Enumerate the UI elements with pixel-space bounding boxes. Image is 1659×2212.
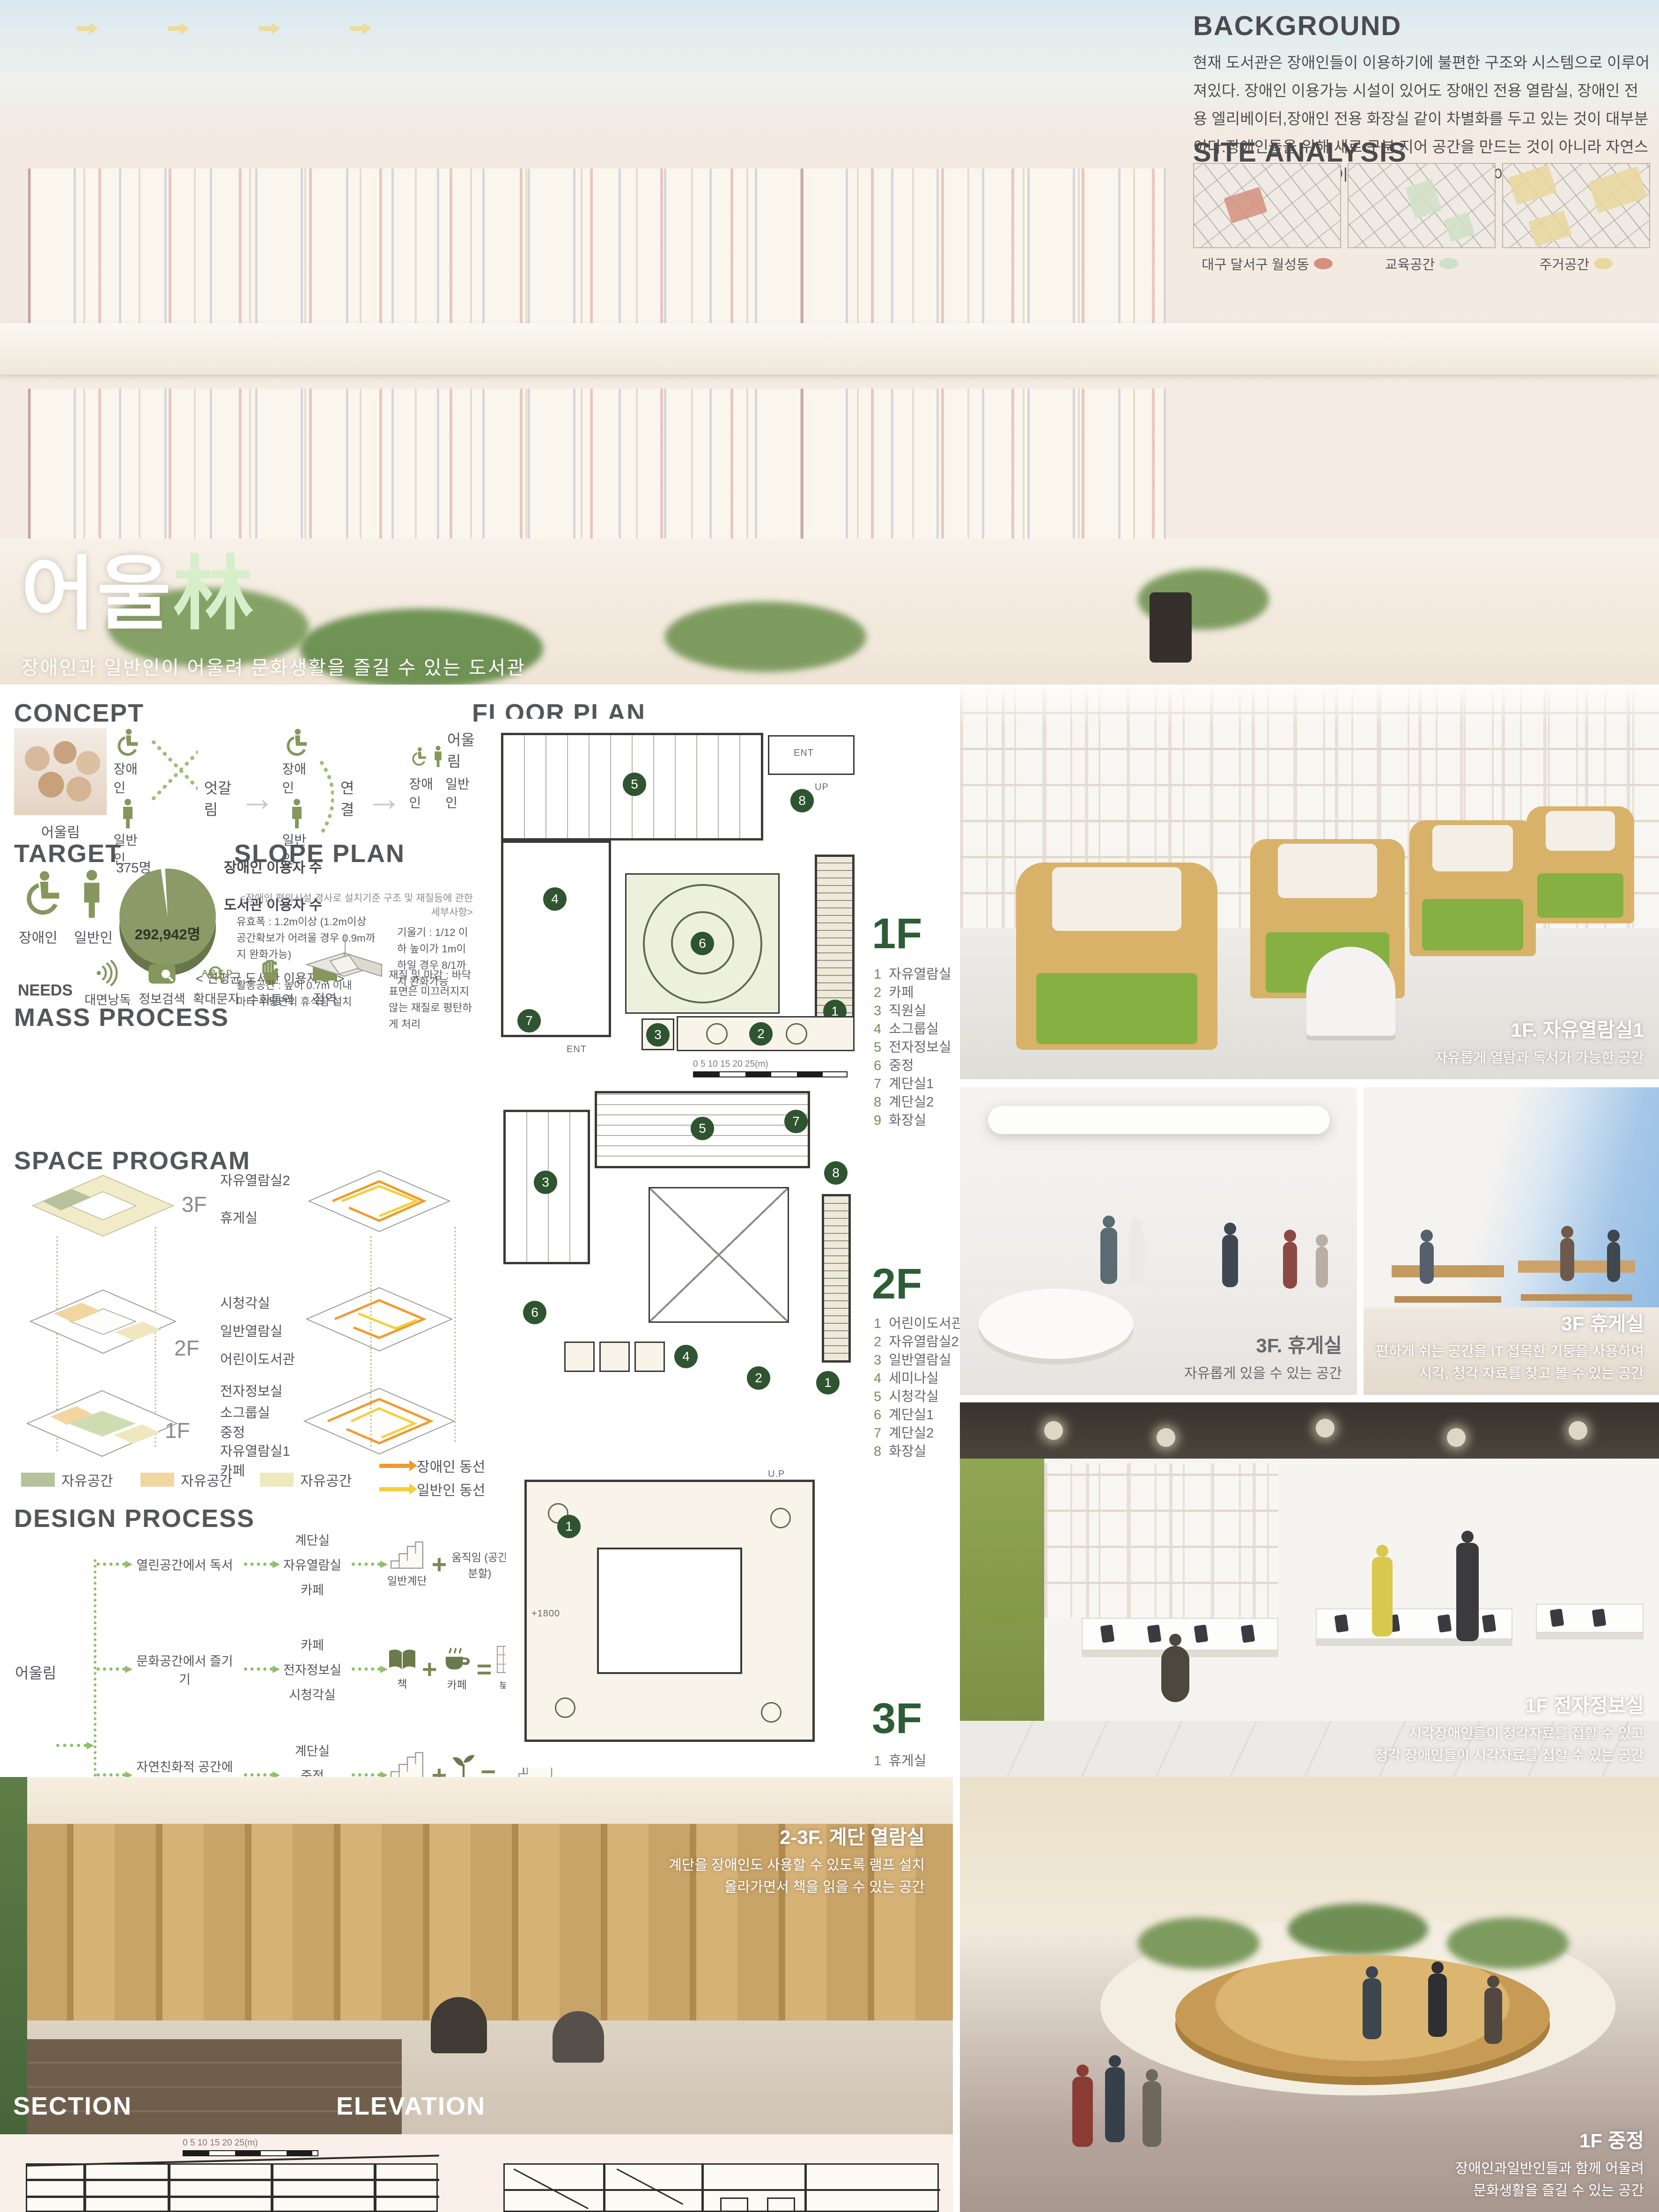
dotted-arrow-icon	[96, 1773, 125, 1777]
book-icon	[387, 1648, 417, 1672]
wheelchair-icon	[20, 869, 66, 918]
orange-arrow-icon	[379, 1464, 410, 1468]
legend-room: 중정	[889, 1058, 914, 1073]
plan-2f-label: 2F	[872, 1260, 922, 1309]
dotted-arrow-icon	[96, 1667, 125, 1671]
legend-room: 전자정보실	[889, 1040, 951, 1055]
person-figure	[1560, 1238, 1574, 1281]
spotlight	[1157, 1428, 1175, 1447]
site-map-location	[1193, 163, 1341, 248]
shrub	[1447, 1917, 1569, 1969]
ceiling	[960, 685, 1659, 727]
space-label: 중정	[220, 1422, 245, 1441]
cross-arrows-icon	[149, 728, 197, 817]
person-icon	[79, 869, 105, 918]
plan-2f-legend: 1어린이도서관 2자유열람실2 3일반열람실 4세미나실 5시청각실 6계단실1…	[874, 1315, 964, 1461]
need-item: 정보검색	[135, 960, 189, 1008]
photo-caption: 2-3F. 계단 열람실 계단을 장애인도 사용할 수 있도록 램프 설치 올라…	[669, 1821, 925, 1898]
magnified-text-icon	[201, 964, 232, 985]
space-item: 시청각실	[289, 1685, 335, 1703]
slope-note-finish: 재질 및 마감 : 바닥표면은 미끄러지지 않는 재질로 평탄하게 처리	[389, 967, 473, 1033]
stage3-label: 어울림	[447, 728, 475, 771]
legend-num: 6	[874, 1058, 881, 1073]
person-figure	[1372, 1557, 1393, 1637]
photo-stair-reading: 2-3F. 계단 열람실 계단을 장애인도 사용할 수 있도록 램프 설치 올라…	[0, 1777, 953, 2134]
room-number: 3	[534, 1171, 557, 1194]
yellow-arrow-icon	[379, 1487, 410, 1491]
photo-courtyard: 1F 중정 장애인과일반인들과 함께 어울려 문화생활을 즐길 수 있는 공간	[960, 1777, 1659, 2212]
legend-room: 세미나실	[889, 1371, 939, 1386]
iso-circ-3f	[304, 1168, 454, 1248]
legend-room: 어린이도서관	[889, 1316, 964, 1331]
design-root-label: 어울림	[15, 1661, 56, 1683]
mass-process-heading: MASS PROCESS	[14, 1003, 229, 1032]
caption-title: 1F 전자정보실	[1375, 1690, 1644, 1718]
caption-line: 자유롭게 열람과 독서가 가능한 공간	[1435, 1047, 1644, 1069]
equation-b-label: 카페	[447, 1676, 467, 1692]
legend-num: 1	[874, 1316, 881, 1331]
room-number: 2	[749, 1022, 773, 1046]
bookshelf-wall	[1044, 1463, 1278, 1618]
dotted-arrow-icon	[352, 1563, 381, 1566]
wheelchair-icon	[282, 728, 311, 757]
caption-title: 1F 중정	[1455, 2125, 1644, 2153]
legend-room: 계단실2	[889, 1426, 934, 1441]
plan-ring-hole	[597, 1548, 742, 1674]
bush	[665, 602, 866, 672]
legend-free-space-green: 자유공간	[21, 1469, 113, 1490]
room-number: 8	[824, 1161, 848, 1185]
room-number: 1	[816, 1371, 840, 1394]
space-label: 휴게실	[220, 1207, 258, 1227]
caption-line: 자유롭게 있을 수 있는 공간	[1184, 1363, 1342, 1385]
photographer-silhouette	[1150, 592, 1192, 663]
person-figure	[1222, 1235, 1238, 1287]
wheelchair-user	[553, 2011, 604, 2063]
person-figure	[1420, 1242, 1434, 1284]
legend-label: 자유공간	[300, 1469, 352, 1490]
voice-reading-icon	[95, 960, 121, 986]
yellow-arrow-icon	[168, 26, 182, 31]
wheelchair-icon	[113, 728, 142, 757]
room-number: 7	[784, 1110, 808, 1133]
space-item: 계단실	[295, 1530, 330, 1548]
caption-line: 장애인과일반인들과 함께 어울려	[1455, 2158, 1644, 2180]
legend-room: 직원실	[889, 1003, 926, 1018]
interior-upper	[960, 1777, 1659, 1932]
photo-caption: 3F 휴게실 편하게 쉬는 공간을 IT 접목한 기둥을 사용하여 시각, 청각…	[1376, 1308, 1644, 1385]
legend-room: 화장실	[889, 1444, 926, 1459]
concept-photo: 어울림	[14, 728, 107, 841]
space-label: 일반열람실	[220, 1320, 282, 1340]
ceiling-light	[988, 1106, 1330, 1134]
floor-tag-2f: 2F	[174, 1335, 199, 1361]
poster-title-korean: 어울	[21, 549, 173, 639]
space-item: 카페	[301, 1580, 324, 1598]
person-figure	[1456, 1543, 1479, 1641]
reading-pod	[1526, 806, 1634, 923]
pie-chart: 292,942명	[119, 869, 216, 965]
legend-free-space-orange: 자유공간	[140, 1469, 232, 1490]
site-map-caption: 대구 달서구 월성동	[1193, 254, 1341, 273]
green-wall	[960, 1459, 1044, 1721]
section-heading: SECTION	[13, 2092, 132, 2121]
photo-digital-room: 1F 전자정보실 시각장애인들이 청각자료를 접할 수 있고 청각 장애인들이 …	[960, 1402, 1659, 1777]
photo-caption: 1F 전자정보실 시각장애인들이 청각자료를 접할 수 있고 청각 장애인들이 …	[1375, 1690, 1644, 1767]
iso-2f	[26, 1288, 180, 1367]
target-icon-label: 일반인	[74, 926, 113, 947]
person-figure	[1105, 2067, 1125, 2142]
plan-seminar	[564, 1342, 595, 1372]
stage1-label: 엇갈림	[204, 776, 233, 819]
room-number: 5	[691, 1117, 714, 1140]
caption-line: 편하게 쉬는 공간을 IT 접목한 기둥을 사용하여	[1376, 1341, 1644, 1363]
legend-label: 자유공간	[181, 1469, 232, 1490]
stairs-icon	[390, 1541, 424, 1569]
legend-num: 8	[874, 1444, 881, 1459]
space-label: 시청각실	[220, 1292, 270, 1312]
caption-title: 3F 휴게실	[1376, 1308, 1644, 1336]
background-heading: BACKGROUND	[1193, 10, 1401, 42]
person-figure	[1484, 1988, 1502, 2044]
label-disabled: 장애인	[282, 759, 311, 796]
scale-ticks: 0 5 10 15 20 25(m)	[183, 2138, 258, 2148]
concept-stage3: 어울림 장애인 일반인	[409, 728, 475, 811]
reading-pod	[1409, 820, 1536, 956]
target-heading: TARGET	[14, 839, 122, 868]
section-scale-bar: 0 5 10 15 20 25(m)	[183, 2138, 318, 2156]
shrub	[1288, 1903, 1428, 1955]
legend-label: 장애인 동선	[417, 1455, 485, 1476]
label-disabled: 장애인	[113, 759, 142, 796]
space-item: 전자정보실	[283, 1660, 341, 1678]
dotted-arrow-icon	[244, 1563, 273, 1566]
stairs-icon	[390, 1752, 424, 1780]
space-item: 계단실	[295, 1741, 330, 1759]
yellow-arrow-icon	[77, 26, 90, 31]
space-label: 자유열람실2	[220, 1170, 290, 1189]
seated-figure	[1161, 1646, 1189, 1702]
display-table	[1536, 1604, 1644, 1633]
person-figure	[1283, 1242, 1297, 1289]
map-label: 주거공간	[1540, 254, 1590, 273]
bookshelf-band-upper	[28, 169, 1166, 323]
bookshelf-band-lower	[28, 389, 1166, 538]
person-figure	[1428, 1974, 1447, 2037]
dotted-arrow-icon	[96, 1563, 125, 1566]
dotted-arrow-icon	[244, 1773, 273, 1777]
plan-1f-legend: 1자유열람실 2카페 3직원실 4소그룹실 5전자정보실 6중정 7계단실1 8…	[874, 966, 951, 1130]
scale-ticks: 0 5 10 15 20 25(m)	[693, 1059, 768, 1069]
caption-title: 1F. 자유열람실1	[1435, 1014, 1644, 1043]
entrance-label: ENT	[567, 1044, 587, 1055]
legend-label: 자유공간	[61, 1469, 113, 1490]
caption-line: 시각, 청각 자료를 찾고 볼 수 있는 공간	[1376, 1363, 1644, 1385]
legend-room: 계단실1	[889, 1077, 934, 1091]
site-map-residential	[1502, 163, 1650, 248]
equals-icon: =	[477, 1656, 492, 1682]
caption-line: 계단을 장애인도 사용할 수 있도록 램프 설치	[669, 1855, 925, 1877]
plan-1f-label: 1F	[872, 909, 922, 959]
legend-label: 일반인 동선	[417, 1479, 485, 1499]
plant-icon	[451, 1753, 476, 1778]
space-list: 계단실 자유열람실 카페	[280, 1530, 345, 1598]
legend-dot-yellow	[1594, 258, 1613, 269]
person-figure	[1363, 1978, 1381, 2039]
label-disabled: 장애인	[409, 774, 439, 811]
wheelchair-icon	[409, 742, 429, 771]
room-number: 6	[691, 932, 714, 955]
floor-tag-1f: 1F	[165, 1418, 190, 1443]
plan-scale-bar: 0 5 10 15 20 25(m)	[693, 1059, 848, 1077]
display-table	[1082, 1618, 1278, 1651]
caption-title: 3F. 휴게실	[1184, 1330, 1342, 1358]
map-label: 교육공간	[1385, 254, 1435, 273]
legend-num: 9	[874, 1113, 881, 1128]
legend-num: 7	[874, 1077, 881, 1091]
root-arrow	[56, 1744, 87, 1747]
legend-room: 자유열람실	[889, 967, 951, 982]
legend-room: 휴게실	[889, 1754, 926, 1769]
photo-lounge-a: 3F. 휴게실 자유롭게 있을 수 있는 공간	[960, 1087, 1357, 1395]
legend-num: 1	[874, 1754, 881, 1769]
legend-num: 6	[874, 1408, 881, 1423]
dotted-arrow-icon	[352, 1773, 381, 1777]
display-table	[1316, 1608, 1512, 1639]
dark-ceiling	[960, 1402, 1659, 1459]
room-number: 4	[674, 1345, 698, 1368]
legend-room: 카페	[889, 985, 914, 1000]
elevation-drawing	[503, 2163, 939, 2212]
legend-num: 3	[874, 1353, 881, 1368]
dotted-arrow-icon	[352, 1667, 381, 1671]
person-figure	[1072, 2077, 1093, 2147]
photo-caption: 1F. 자유열람실1 자유롭게 열람과 독서가 가능한 공간	[1435, 1014, 1644, 1069]
photo-caption: 1F 중정 장애인과일반인들과 함께 어울려 문화생활을 즐길 수 있는 공간	[1455, 2125, 1644, 2202]
space-item: 자유열람실	[283, 1555, 341, 1573]
legend-num: 7	[874, 1426, 881, 1441]
legend-room: 소그룹실	[889, 1022, 939, 1037]
design-row-2: 문화공간에서 즐기기 카페 전자정보실 시청각실 책 + 카페 = 북카페	[96, 1635, 531, 1703]
room-number: 7	[517, 1009, 541, 1032]
activity-label: 열린공간에서 독서	[132, 1555, 237, 1573]
plan-void	[649, 1187, 789, 1323]
legend-num: 4	[874, 1371, 881, 1386]
need-item: 확대문자	[189, 960, 243, 1008]
map-label: 대구 달서구 월성동	[1202, 254, 1309, 273]
legend-circulation-general: 일반인 동선	[379, 1479, 485, 1499]
legend-room: 자유열람실2	[889, 1335, 959, 1349]
legend-free-space-yellow: 자유공간	[260, 1469, 352, 1490]
group-photo	[14, 728, 107, 815]
person-icon	[120, 798, 136, 828]
poster: 어울林 장애인과 일반인이 어울려 문화생활을 즐길 수 있는 도서관 BACK…	[0, 0, 1659, 2212]
poster-title-hanja: 林	[173, 549, 255, 639]
slope-note-activity: 활동공간 : 높이 0.7m 이내마다 수평면의 휴식참 설치	[236, 978, 354, 1010]
legend-num: 8	[874, 1095, 881, 1110]
space-label: 전자정보실	[220, 1380, 282, 1400]
title-block: 어울林 장애인과 일반인이 어울려 문화생활을 즐길 수 있는 도서관	[21, 528, 526, 680]
spotlight	[1316, 1419, 1335, 1438]
space-label: 어린이도서관	[220, 1349, 295, 1368]
caption-line: 문화생활을 즐길 수 있는 공간	[1455, 2180, 1644, 2202]
plan-1f: 5 ENT UP 8 4 6 1 3 2 7 ENT	[487, 719, 859, 1054]
wheelchair-user	[431, 1997, 487, 2053]
person-figure	[1607, 1242, 1620, 1282]
arrow-right-icon: →	[366, 780, 403, 816]
section-drawing	[26, 2163, 438, 2212]
swatch-orange	[140, 1473, 174, 1487]
plan-seminar	[599, 1342, 630, 1372]
space-item: 카페	[301, 1635, 324, 1653]
level-label: +1800	[531, 1608, 560, 1619]
poster-subtitle: 장애인과 일반인이 어울려 문화생활을 즐길 수 있는 도서관	[21, 652, 526, 680]
round-pod	[979, 1289, 1133, 1359]
plan-seminar	[634, 1342, 665, 1372]
spotlight	[1044, 1421, 1063, 1440]
mezzanine-floor	[0, 323, 1659, 375]
room-number: 5	[623, 773, 646, 796]
equation-b-label: 움직임 (공간 분할)	[451, 1548, 508, 1580]
arrow-right-icon: →	[239, 780, 276, 816]
up-label: U.P	[768, 1469, 785, 1480]
activity-label: 문화공간에서 즐기기	[132, 1651, 237, 1688]
need-item: 대면낭독	[81, 960, 135, 1008]
green-plant-wall	[0, 1777, 27, 2134]
plan-3f-legend: 1휴게실	[874, 1752, 926, 1770]
person-figure	[1100, 1228, 1117, 1284]
concept-heading: CONCEPT	[14, 699, 144, 728]
legend-num: 3	[874, 1003, 881, 1018]
person-figure	[1143, 2081, 1161, 2147]
yellow-arrow-icon	[259, 26, 273, 31]
room-number: 6	[523, 1301, 546, 1324]
site-map-caption: 교육공간	[1348, 254, 1496, 273]
search-tablet-icon	[147, 963, 177, 985]
iso-3f	[28, 1173, 178, 1253]
legend-room: 일반열람실	[889, 1353, 951, 1368]
concept-photo-caption: 어울림	[14, 821, 107, 841]
shrub	[1138, 1917, 1260, 1969]
legend-num: 2	[874, 1335, 881, 1349]
legend-room: 계단실1	[889, 1408, 934, 1423]
room-number: 4	[543, 887, 567, 911]
needs-label: NEEDS	[18, 981, 73, 1000]
label-general: 일반인	[445, 774, 475, 811]
spotlight	[1569, 1421, 1587, 1440]
room-number: 3	[646, 1023, 670, 1047]
up-label: UP	[815, 782, 829, 793]
plan-3f-label: 3F	[872, 1694, 922, 1743]
space-label: 소그룹실	[220, 1402, 270, 1422]
person-figure	[1316, 1246, 1328, 1288]
person-icon	[289, 798, 305, 828]
wheelchair-shape	[1306, 947, 1395, 1036]
spotlight	[1447, 1428, 1466, 1447]
pie-big-value: 292,942명	[135, 922, 201, 944]
equation-a-label: 일반계단	[387, 1572, 427, 1588]
legend-num: 1	[874, 967, 881, 982]
legend-num: 4	[874, 1022, 881, 1037]
swatch-yellow	[260, 1473, 294, 1487]
target-icon-label: 장애인	[19, 926, 58, 947]
person-figure	[1128, 1230, 1144, 1284]
equation-a-label: 책	[397, 1675, 407, 1691]
plan-2f: 5 3 7 8 4 6 2 1	[494, 1082, 859, 1419]
dotted-arrow-icon	[244, 1667, 273, 1671]
elevation-heading: ELEVATION	[336, 2092, 486, 2121]
plan-3f: 1 +1800 U.P	[506, 1463, 857, 1768]
person-icon	[433, 741, 443, 771]
caption-title: 2-3F. 계단 열람실	[669, 1821, 925, 1850]
room-number: 8	[790, 789, 814, 812]
photo-reading-room: 1F. 자유열람실1 자유롭게 열람과 독서가 가능한 공간	[960, 685, 1659, 1079]
legend-room: 화장실	[889, 1113, 926, 1128]
space-list: 카페 전자정보실 시청각실	[280, 1635, 345, 1703]
legend-dot-pink	[1314, 258, 1333, 269]
slope-plan-heading: SLOPE PLAN	[234, 839, 405, 868]
yellow-arrow-icon	[350, 26, 364, 31]
legend-num: 2	[874, 985, 881, 1000]
caption-line: 시각장애인들이 청각자료를 접할 수 있고	[1375, 1723, 1644, 1745]
swatch-green	[21, 1473, 55, 1487]
plan-bookstacks	[822, 1194, 851, 1363]
caption-line: 청각 장애인들이 시각자료를 접할 수 있는 공간	[1375, 1745, 1644, 1767]
space-label: 자유열람실1	[220, 1440, 290, 1460]
site-map-education	[1348, 163, 1496, 248]
photo-caption: 3F. 휴게실 자유롭게 있을 수 있는 공간	[1184, 1330, 1342, 1385]
connect-arc-icon	[318, 757, 334, 839]
legend-num: 5	[874, 1040, 881, 1055]
legend-circulation-disabled: 장애인 동선	[379, 1455, 485, 1476]
plus-icon: +	[432, 1551, 447, 1578]
iso-circ-2f	[302, 1285, 457, 1365]
room-number: 2	[747, 1366, 770, 1390]
legend-room: 시청각실	[889, 1389, 939, 1404]
reading-pod	[1016, 863, 1217, 1050]
plus-icon: +	[422, 1656, 437, 1682]
wood-table	[1392, 1265, 1504, 1277]
coffee-cup-icon	[442, 1647, 472, 1673]
space-program-heading: SPACE PROGRAM	[14, 1146, 251, 1175]
design-process-heading: DESIGN PROCESS	[14, 1504, 255, 1533]
photo-lounge-b: 3F 휴게실 편하게 쉬는 공간을 IT 접목한 기둥을 사용하여 시각, 청각…	[1364, 1087, 1659, 1395]
iso-1f	[22, 1388, 182, 1473]
plan-room	[501, 841, 611, 1037]
floor-tag-3f: 3F	[182, 1192, 207, 1217]
room-number: 1	[557, 1515, 581, 1538]
legend-dot-green	[1439, 258, 1458, 269]
legend-num: 5	[874, 1389, 881, 1404]
stage2-label: 연결	[340, 776, 360, 819]
caption-line: 올라가면서 책을 읽을 수 있는 공간	[669, 1877, 925, 1899]
legend-room: 계단실2	[889, 1095, 934, 1110]
ceiling	[0, 1777, 953, 1829]
site-map-caption: 주거공간	[1502, 254, 1650, 273]
drawings-strip: 0 5 10 15 20 25(m)	[0, 2134, 953, 2212]
entrance-label: ENT	[794, 748, 814, 759]
